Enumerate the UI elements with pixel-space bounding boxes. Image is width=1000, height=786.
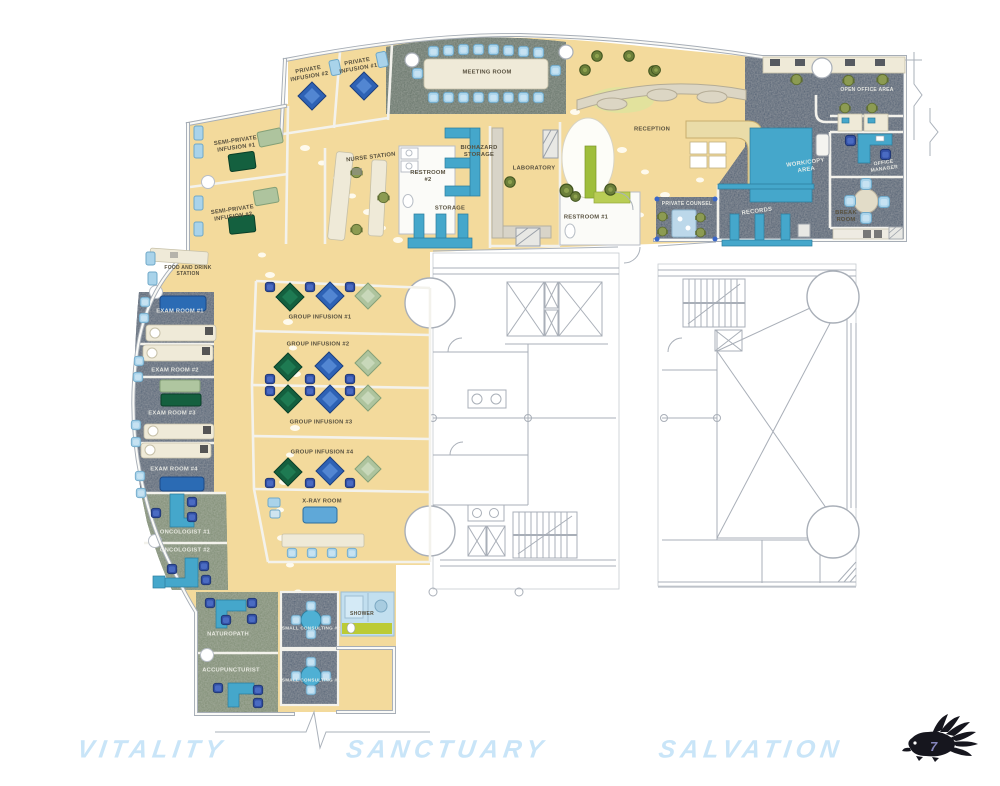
biohazard-shelf: [445, 128, 480, 196]
floor-plan-drawing: 7: [0, 0, 1000, 786]
storage-shelf: [408, 214, 472, 248]
work-copy-counter: [750, 128, 812, 202]
column-right-bottom: [807, 506, 859, 558]
porcupine-logo: 7: [902, 714, 978, 762]
floor-plan-page: 7 PRIVATE INFUSION #2PRIVATE INFUSION #1…: [0, 0, 1000, 786]
column-right-top: [807, 271, 859, 323]
core-right: [658, 264, 859, 587]
meeting-table: [424, 59, 548, 89]
break-table: [854, 189, 878, 213]
core-left: [405, 253, 619, 596]
page-number: 7: [930, 739, 938, 754]
